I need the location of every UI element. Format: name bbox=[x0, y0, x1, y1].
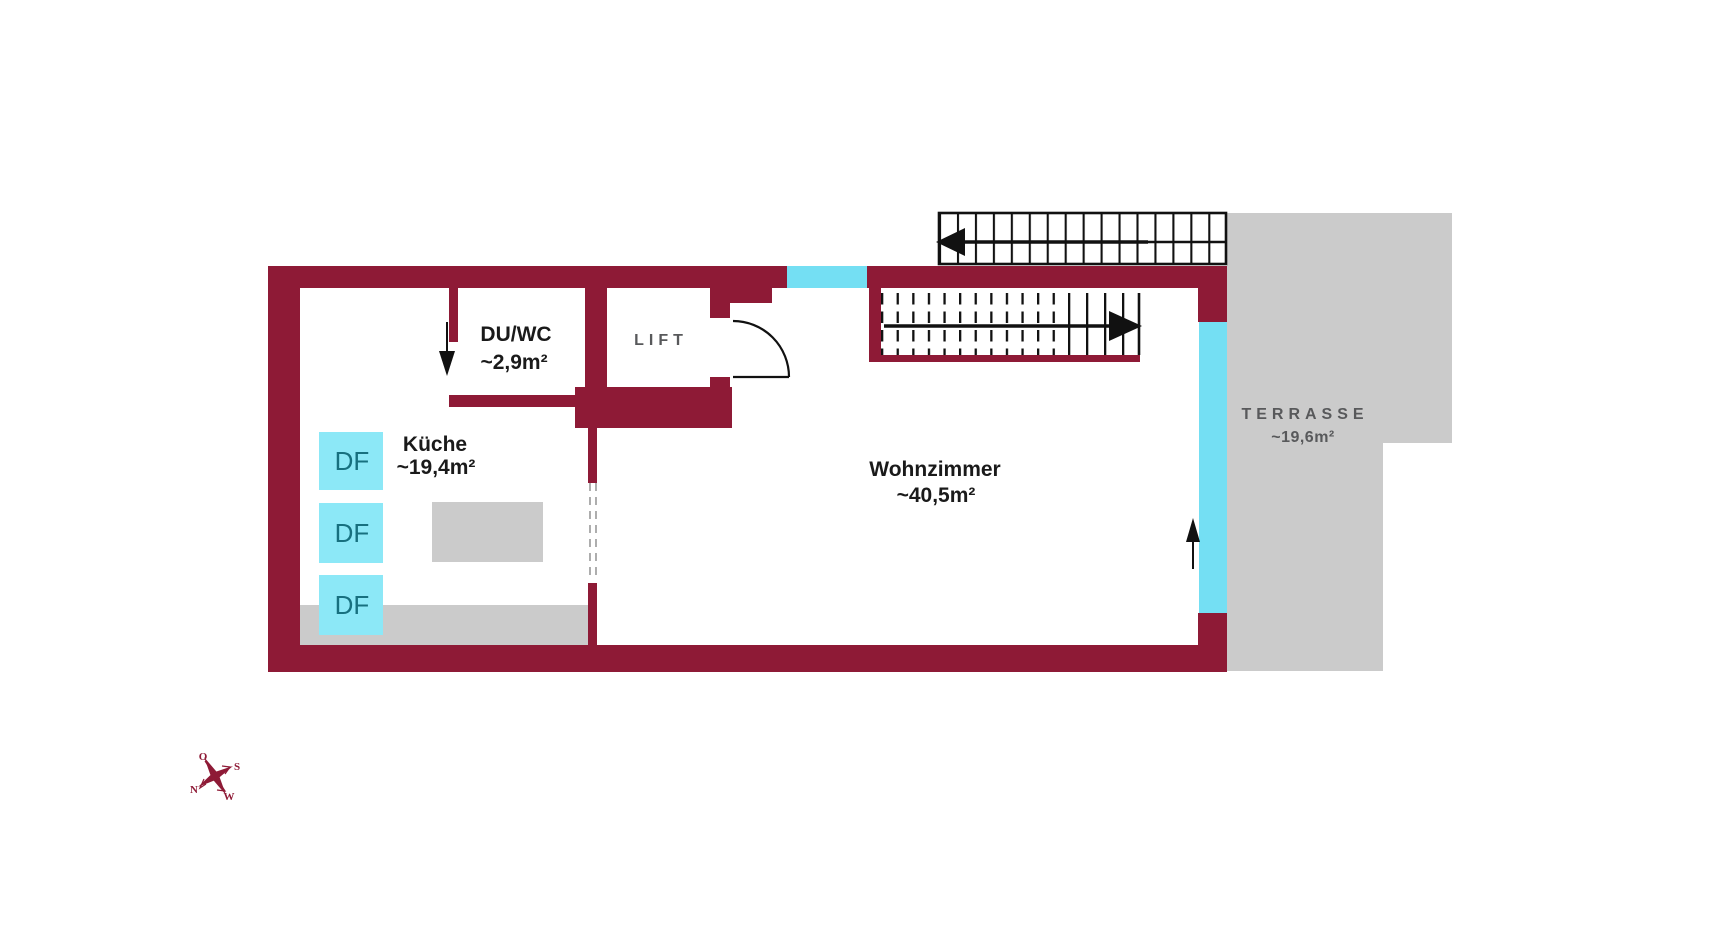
duwc-wall-bottom bbox=[449, 395, 588, 407]
compass-west-label: W bbox=[224, 791, 235, 803]
outer-staircase bbox=[936, 213, 1226, 264]
roof-window-label: DF bbox=[335, 590, 370, 620]
window-right bbox=[1199, 322, 1227, 613]
window-top bbox=[787, 266, 867, 288]
wall-right-upper bbox=[1198, 266, 1227, 322]
terrace-floor bbox=[1227, 213, 1452, 671]
wall-top bbox=[268, 266, 1227, 288]
wohnzimmer-label: Wohnzimmer bbox=[869, 458, 1000, 481]
lift-wall-right bbox=[710, 288, 730, 318]
duwc-wall-left bbox=[449, 283, 458, 342]
wall-left bbox=[268, 266, 300, 672]
roof-windows: DF DF DF bbox=[319, 432, 383, 635]
door-arc bbox=[733, 321, 789, 377]
door-swing bbox=[733, 321, 789, 377]
roof-window-label: DF bbox=[335, 446, 370, 476]
duwc-lift-wall bbox=[585, 283, 607, 395]
wohnzimmer-area-label: ~40,5m² bbox=[897, 484, 976, 507]
window-up-arrow-head bbox=[1186, 518, 1200, 542]
divider-wall-lower bbox=[588, 583, 597, 645]
floor-plan: TERRASSE ~19,6m² bbox=[0, 0, 1733, 943]
compass-star bbox=[198, 766, 233, 787]
duwc-down-arrow-head bbox=[439, 351, 455, 376]
kueche-label: Küche bbox=[403, 433, 467, 456]
lift-label: LIFT bbox=[634, 332, 688, 349]
wall-right-lower bbox=[1198, 613, 1227, 672]
duwc-area-label: ~2,9m² bbox=[480, 351, 547, 374]
stairs-base-wall bbox=[869, 355, 1140, 362]
stairs-side-wall bbox=[869, 288, 881, 362]
wall-below-lift bbox=[575, 387, 732, 428]
inner-staircase bbox=[869, 288, 1142, 362]
duwc-label: DU/WC bbox=[480, 323, 551, 346]
terrace: TERRASSE ~19,6m² bbox=[1227, 213, 1452, 671]
compass: O S N W bbox=[190, 751, 240, 803]
terrace-label: TERRASSE bbox=[1241, 406, 1368, 423]
kueche-area-label: ~19,4m² bbox=[397, 456, 476, 479]
compass-south-label: S bbox=[234, 761, 240, 773]
roof-window-label: DF bbox=[335, 518, 370, 548]
divider-wall-upper bbox=[588, 428, 597, 483]
terrace-area-label: ~19,6m² bbox=[1271, 429, 1335, 446]
kitchen-island bbox=[432, 502, 543, 562]
wall-bottom bbox=[268, 645, 1227, 672]
compass-east-label: O bbox=[199, 751, 208, 763]
compass-north-label: N bbox=[190, 784, 198, 796]
door-stub-wall bbox=[710, 377, 730, 387]
